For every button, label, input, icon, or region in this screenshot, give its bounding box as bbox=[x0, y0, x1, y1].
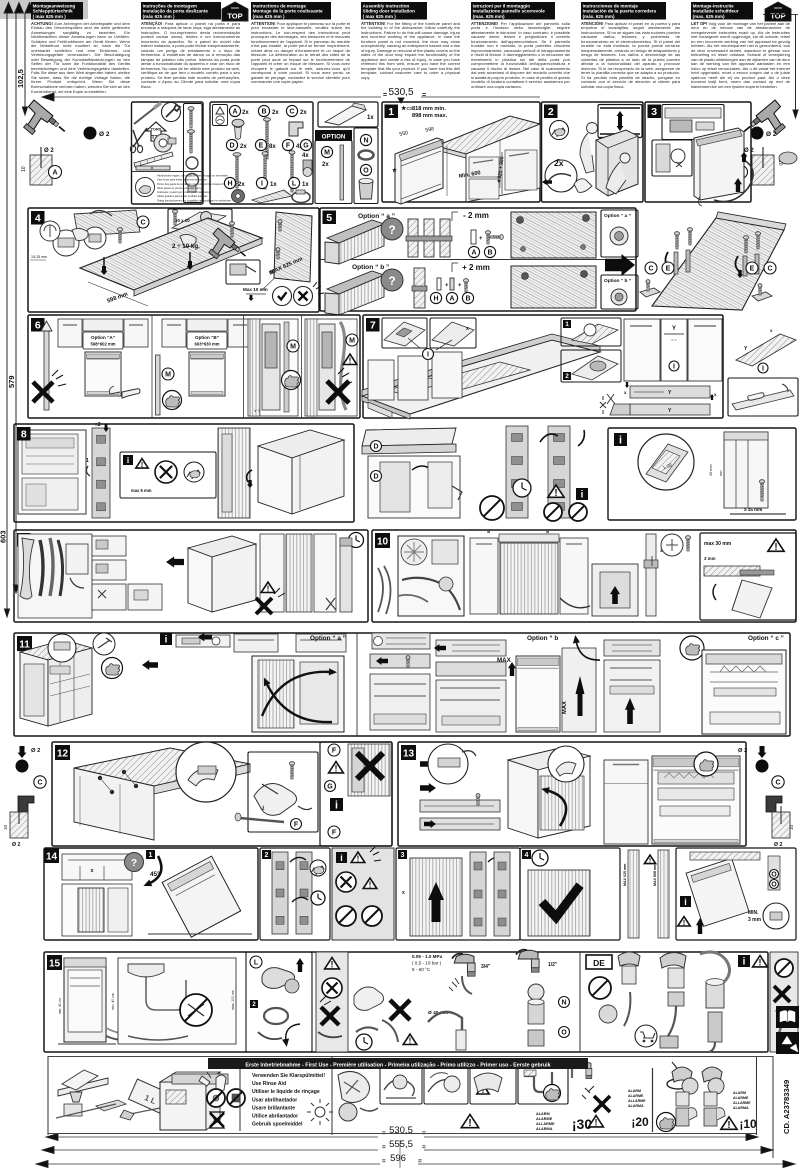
svg-text:Option “ b ”: Option “ b ” bbox=[604, 278, 632, 284]
svg-text:D: D bbox=[229, 143, 234, 150]
svg-text:E: E bbox=[259, 143, 264, 150]
svg-text:!: ! bbox=[554, 488, 557, 499]
svg-text:★▭: ★▭ bbox=[401, 105, 412, 112]
svg-text:L: L bbox=[292, 181, 297, 188]
svg-text:1x: 1x bbox=[270, 182, 277, 188]
svg-text:Handschuhe tragen, um mögliche: Handschuhe tragen, um mögliche Verletzun… bbox=[157, 174, 228, 178]
svg-text:I: I bbox=[762, 366, 764, 373]
svg-text:Wear gloves to prevent potenti: Wear gloves to prevent potential injury bbox=[157, 186, 202, 190]
svg-text:A: A bbox=[52, 170, 57, 177]
svg-text:1: 1 bbox=[86, 458, 89, 464]
svg-text:+: + bbox=[479, 236, 483, 242]
svg-text:2x: 2x bbox=[240, 144, 247, 150]
svg-text:2: 2 bbox=[548, 106, 554, 118]
svg-text:min. 40 cm: min. 40 cm bbox=[111, 993, 115, 1010]
svg-text:MAX: MAX bbox=[562, 701, 568, 714]
svg-text:N: N bbox=[363, 138, 368, 145]
svg-text:- 2 mm: - 2 mm bbox=[463, 211, 489, 220]
svg-text:ALARMA: ALARMA bbox=[733, 1106, 749, 1110]
svg-text:= =: = = bbox=[671, 337, 677, 342]
svg-text:Option “ c ”: Option “ c ” bbox=[748, 635, 784, 642]
svg-text:!: ! bbox=[267, 584, 270, 593]
svg-text:Ø 2: Ø 2 bbox=[31, 748, 40, 754]
svg-text:14: 14 bbox=[46, 852, 58, 863]
svg-text:D: D bbox=[373, 474, 378, 481]
svg-text:ALARM: ALARM bbox=[536, 1112, 550, 1116]
svg-text:530,5: 530,5 bbox=[388, 87, 413, 98]
svg-text:G: G bbox=[327, 784, 333, 791]
svg-text:?: ? bbox=[388, 223, 395, 237]
svg-text:MAX: MAX bbox=[497, 657, 512, 664]
svg-text:Usar abrilhantador: Usar abrilhantador bbox=[252, 1097, 297, 1103]
svg-text:max. 100 cm: max. 100 cm bbox=[231, 990, 235, 1010]
svg-text:Gebruik spoelmiddel: Gebruik spoelmiddel bbox=[252, 1122, 303, 1128]
svg-text:!: ! bbox=[357, 854, 360, 863]
svg-text:≡2: ≡2 bbox=[95, 422, 101, 428]
svg-text:3: 3 bbox=[651, 106, 657, 118]
svg-text:3 mm: 3 mm bbox=[748, 917, 762, 923]
svg-text:ALARME: ALARME bbox=[628, 1094, 644, 1098]
svg-text:Ø 2: Ø 2 bbox=[99, 131, 110, 138]
svg-text:G: G bbox=[303, 143, 309, 150]
svg-text:MAX 625 mm: MAX 625 mm bbox=[623, 864, 627, 886]
svg-text:L: L bbox=[254, 960, 259, 967]
svg-text:=: = bbox=[382, 1144, 386, 1151]
svg-text:598÷602 mm: 598÷602 mm bbox=[91, 342, 116, 347]
svg-text:( 0,5 - 10 bar ): ( 0,5 - 10 bar ) bbox=[412, 961, 442, 966]
svg-text:Ø 2: Ø 2 bbox=[44, 148, 54, 154]
svg-text:i: i bbox=[127, 456, 129, 465]
svg-text:2x: 2x bbox=[242, 110, 249, 116]
svg-text:C: C bbox=[140, 220, 145, 227]
svg-text:2x: 2x bbox=[272, 110, 279, 116]
svg-text:!: ! bbox=[649, 858, 651, 865]
svg-text:B: B bbox=[261, 109, 266, 116]
svg-text:!: ! bbox=[759, 958, 762, 968]
svg-text:Porter des gants de protection: Porter des gants de protection pour prév… bbox=[157, 182, 233, 186]
svg-text:i: i bbox=[581, 490, 584, 501]
svg-text:=: = bbox=[546, 530, 549, 536]
svg-text:min. 40 cm: min. 40 cm bbox=[58, 998, 62, 1014]
svg-text:M: M bbox=[165, 372, 171, 379]
svg-text:818 mm min.: 818 mm min. bbox=[412, 106, 446, 112]
svg-text:4: 4 bbox=[35, 213, 41, 225]
svg-text:2: 2 bbox=[265, 852, 269, 859]
svg-text:A: A bbox=[471, 250, 476, 257]
svg-text:( max 625 mm ): ( max 625 mm ) bbox=[33, 14, 67, 19]
svg-text:ALARM: ALARM bbox=[733, 1091, 746, 1095]
svg-text:F: F bbox=[286, 143, 291, 150]
svg-text:898 mm max.: 898 mm max. bbox=[412, 113, 448, 119]
svg-text:ALARME: ALARME bbox=[733, 1096, 749, 1100]
svg-text:!: ! bbox=[595, 1118, 598, 1128]
svg-text:Ø 2: Ø 2 bbox=[766, 131, 777, 138]
svg-text:2: 2 bbox=[565, 373, 569, 380]
svg-text:530,5: 530,5 bbox=[389, 1125, 413, 1136]
svg-text:0.05 - 1.0 MPa: 0.05 - 1.0 MPa bbox=[412, 954, 443, 959]
svg-text:7: 7 bbox=[370, 320, 376, 332]
svg-text:1: 1 bbox=[149, 852, 153, 859]
svg-text:!: ! bbox=[335, 764, 338, 774]
svg-text:A: A bbox=[232, 109, 237, 116]
svg-text:M: M bbox=[324, 150, 330, 157]
svg-text:I: I bbox=[427, 352, 429, 359]
svg-text:603: 603 bbox=[0, 530, 8, 543]
svg-text:+: + bbox=[458, 283, 462, 289]
svg-text:3: 3 bbox=[401, 852, 405, 859]
svg-text:Utiliser le liquide de rinçage: Utiliser le liquide de rinçage bbox=[252, 1089, 320, 1095]
svg-text:=: = bbox=[487, 530, 490, 536]
svg-text:10: 10 bbox=[377, 537, 389, 548]
svg-text:4x: 4x bbox=[302, 153, 309, 159]
svg-text:(máx. 625 mm): (máx. 625 mm) bbox=[583, 14, 615, 19]
svg-text:C: C bbox=[37, 780, 42, 787]
svg-text:Utilice guantes para evitar po: Utilice guantes para evitar posibles les… bbox=[157, 194, 208, 198]
svg-text:i: i bbox=[340, 853, 343, 863]
svg-text:C: C bbox=[289, 109, 294, 116]
svg-text:i: i bbox=[165, 635, 168, 646]
svg-text:i: i bbox=[684, 897, 687, 907]
svg-text:Option “B”: Option “B” bbox=[195, 335, 219, 340]
svg-text:ALLARME: ALLARME bbox=[536, 1122, 555, 1126]
svg-text:!: ! bbox=[683, 918, 686, 927]
svg-text:=: = bbox=[422, 1144, 426, 1151]
svg-text:!: ! bbox=[774, 542, 777, 553]
svg-text:(max. 625 mm): (max. 625 mm) bbox=[473, 14, 505, 19]
svg-text:ALARME: ALARME bbox=[536, 1117, 553, 1121]
svg-text:8x: 8x bbox=[269, 144, 276, 150]
svg-text:1x: 1x bbox=[302, 182, 309, 188]
svg-text:2x: 2x bbox=[300, 110, 307, 116]
svg-text:2x: 2x bbox=[322, 162, 329, 168]
svg-text:60 x 10: 60 x 10 bbox=[175, 218, 190, 223]
svg-text:13: 13 bbox=[403, 749, 415, 760]
svg-text:¡20: ¡20 bbox=[631, 1115, 649, 1129]
svg-text:!: ! bbox=[369, 880, 372, 889]
svg-text:¡10: ¡10 bbox=[739, 1117, 757, 1131]
svg-text:15: 15 bbox=[49, 959, 61, 970]
svg-text:CD. A23783349: CD. A23783349 bbox=[782, 1080, 791, 1134]
svg-text:max 5 mm: max 5 mm bbox=[131, 488, 152, 493]
svg-text:Draag handschoenen om mogelijk: Draag handschoenen om mogelijke verwondi… bbox=[157, 198, 232, 202]
svg-text:ALLARME: ALLARME bbox=[628, 1099, 646, 1103]
svg-text:O: O bbox=[363, 168, 369, 175]
svg-text:¡30: ¡30 bbox=[572, 1116, 592, 1132]
svg-text:N: N bbox=[561, 1000, 566, 1007]
svg-text:Y: Y bbox=[672, 326, 676, 332]
svg-text:O: O bbox=[771, 872, 777, 879]
svg-text:579: 579 bbox=[7, 375, 16, 388]
svg-text:!: ! bbox=[349, 356, 352, 365]
svg-text:1x: 1x bbox=[367, 115, 374, 121]
svg-text:Verwenden Sie Klarspülmittel!: Verwenden Sie Klarspülmittel! bbox=[252, 1073, 325, 1079]
svg-text:+: + bbox=[445, 283, 449, 289]
svg-text:11: 11 bbox=[19, 640, 30, 651]
svg-text:Indossare i guanti per evitare: Indossare i guanti per evitare potenzial… bbox=[157, 190, 211, 194]
svg-text:( max 625 mm ): ( max 625 mm ) bbox=[363, 14, 397, 19]
svg-text:MAX 898 mm: MAX 898 mm bbox=[653, 864, 657, 886]
svg-text:2 ÷ 10 kg.: 2 ÷ 10 kg. bbox=[172, 243, 200, 250]
svg-text:!: ! bbox=[409, 1036, 412, 1045]
svg-text:10: 10 bbox=[789, 824, 794, 830]
svg-text:10: 10 bbox=[3, 824, 8, 830]
svg-text:M: M bbox=[290, 344, 296, 351]
svg-text:O: O bbox=[561, 1030, 567, 1037]
svg-text:F: F bbox=[332, 830, 337, 837]
svg-text:2x: 2x bbox=[238, 182, 245, 188]
svg-text:TORX: TORX bbox=[151, 127, 162, 132]
svg-text:Usare brillantante: Usare brillantante bbox=[252, 1105, 295, 1111]
svg-text:ALARMA: ALARMA bbox=[536, 1127, 553, 1131]
svg-text:F: F bbox=[294, 822, 299, 829]
svg-text:=: = bbox=[422, 92, 426, 99]
svg-text:B: B bbox=[465, 296, 470, 303]
svg-text:2x: 2x bbox=[554, 158, 564, 168]
svg-text:∨ ≡: ∨ ≡ bbox=[254, 408, 261, 413]
svg-text:E: E bbox=[666, 266, 671, 273]
svg-text:(máx 625 mm ): (máx 625 mm ) bbox=[143, 14, 175, 19]
svg-text:10: 10 bbox=[21, 166, 27, 172]
svg-text:Ø 2: Ø 2 bbox=[744, 148, 754, 154]
svg-text:ALARMA: ALARMA bbox=[628, 1104, 644, 1108]
svg-text:D: D bbox=[373, 444, 378, 451]
svg-text:3 mm: 3 mm bbox=[704, 556, 716, 561]
svg-text:C: C bbox=[648, 266, 653, 273]
svg-text:Use Rinse Aid: Use Rinse Aid bbox=[252, 1081, 286, 1087]
svg-text:!: ! bbox=[727, 1120, 730, 1131]
svg-text:!: ! bbox=[141, 460, 144, 469]
svg-text:1/2": 1/2" bbox=[548, 962, 558, 968]
svg-text:?: ? bbox=[388, 274, 395, 288]
svg-text:MIN.: MIN. bbox=[748, 910, 759, 916]
svg-text:x: x bbox=[466, 326, 469, 332]
svg-text:ALARM: ALARM bbox=[628, 1089, 641, 1093]
svg-text:8: 8 bbox=[21, 429, 27, 441]
svg-text:C: C bbox=[775, 780, 780, 787]
svg-text:5: 5 bbox=[326, 212, 332, 224]
svg-text:(max. 625 mm): (max. 625 mm) bbox=[693, 14, 725, 19]
svg-text:6: 6 bbox=[35, 320, 41, 332]
svg-text:Option “ a ”: Option “ a ” bbox=[310, 635, 346, 642]
svg-text:Option “ b: Option “ b bbox=[527, 635, 558, 642]
svg-text:≥ 35 mm: ≥ 35 mm bbox=[744, 507, 762, 512]
svg-text:C: C bbox=[767, 266, 772, 273]
svg-text:H: H bbox=[433, 296, 438, 303]
svg-text:OPTION: OPTION bbox=[322, 134, 346, 141]
svg-text:i: i bbox=[619, 434, 622, 446]
svg-text:12: 12 bbox=[57, 749, 69, 760]
svg-text:555,5: 555,5 bbox=[389, 1139, 413, 1150]
svg-text:ALLARME: ALLARME bbox=[733, 1101, 751, 1105]
svg-text:1: 1 bbox=[388, 106, 394, 118]
svg-text:I: I bbox=[673, 364, 675, 371]
svg-text:!: ! bbox=[331, 960, 334, 970]
svg-text:TOP: TOP bbox=[770, 12, 785, 21]
svg-text:M: M bbox=[349, 338, 355, 345]
svg-text:40 mm: 40 mm bbox=[709, 464, 713, 476]
svg-text:min: min bbox=[719, 470, 723, 476]
svg-text:=: = bbox=[382, 1158, 386, 1165]
svg-text:603÷630 mm: 603÷630 mm bbox=[195, 342, 220, 347]
svg-text:1: 1 bbox=[565, 321, 569, 328]
svg-text:+ 2 mm: + 2 mm bbox=[462, 263, 490, 272]
svg-text:i: i bbox=[743, 957, 746, 968]
svg-text:Max 10 mm: Max 10 mm bbox=[243, 287, 268, 292]
svg-text:max 30 mm: max 30 mm bbox=[704, 541, 732, 547]
svg-text:Option “ b ”: Option “ b ” bbox=[352, 264, 389, 271]
svg-text:O: O bbox=[771, 882, 777, 889]
svg-text:Utilice abrilantador: Utilice abrilantador bbox=[252, 1114, 298, 1120]
svg-text:3/4": 3/4" bbox=[481, 964, 491, 970]
svg-text:15-25 mm: 15-25 mm bbox=[31, 255, 47, 259]
svg-text:4: 4 bbox=[525, 852, 529, 859]
svg-text:Option “A”: Option “A” bbox=[91, 335, 115, 340]
svg-text:F: F bbox=[332, 748, 337, 755]
svg-text:5 - 60 °C: 5 - 60 °C bbox=[412, 967, 431, 972]
svg-text:x: x bbox=[402, 890, 405, 896]
svg-text:B: B bbox=[487, 250, 492, 257]
svg-text:!: ! bbox=[468, 1117, 472, 1129]
svg-text:H: H bbox=[227, 181, 232, 188]
svg-text:DE: DE bbox=[593, 958, 605, 968]
svg-text:=: = bbox=[418, 1158, 422, 1165]
svg-text:A: A bbox=[449, 296, 454, 303]
svg-text:=: = bbox=[383, 92, 387, 99]
svg-text:102,5: 102,5 bbox=[16, 69, 25, 88]
svg-text:Ø 2: Ø 2 bbox=[774, 842, 782, 848]
svg-text:E: E bbox=[750, 266, 755, 273]
svg-text:i: i bbox=[335, 799, 338, 811]
svg-text:Ø 2: Ø 2 bbox=[12, 842, 20, 848]
svg-text:I: I bbox=[261, 181, 263, 188]
svg-text:TOP: TOP bbox=[227, 12, 242, 21]
svg-text:Erste Inbetriebnahme - First U: Erste Inbetriebnahme - First Use - Premi… bbox=[245, 1063, 550, 1069]
svg-text:596: 596 bbox=[390, 1153, 406, 1164]
svg-text:?: ? bbox=[131, 858, 137, 869]
svg-text:Option “ a ”: Option “ a ” bbox=[604, 213, 632, 219]
svg-text:(max 625 mm ): (max 625 mm ) bbox=[253, 14, 285, 19]
svg-text:Usar luvas para evitar possíve: Usar luvas para evitar possíveis ferimen… bbox=[157, 178, 207, 182]
